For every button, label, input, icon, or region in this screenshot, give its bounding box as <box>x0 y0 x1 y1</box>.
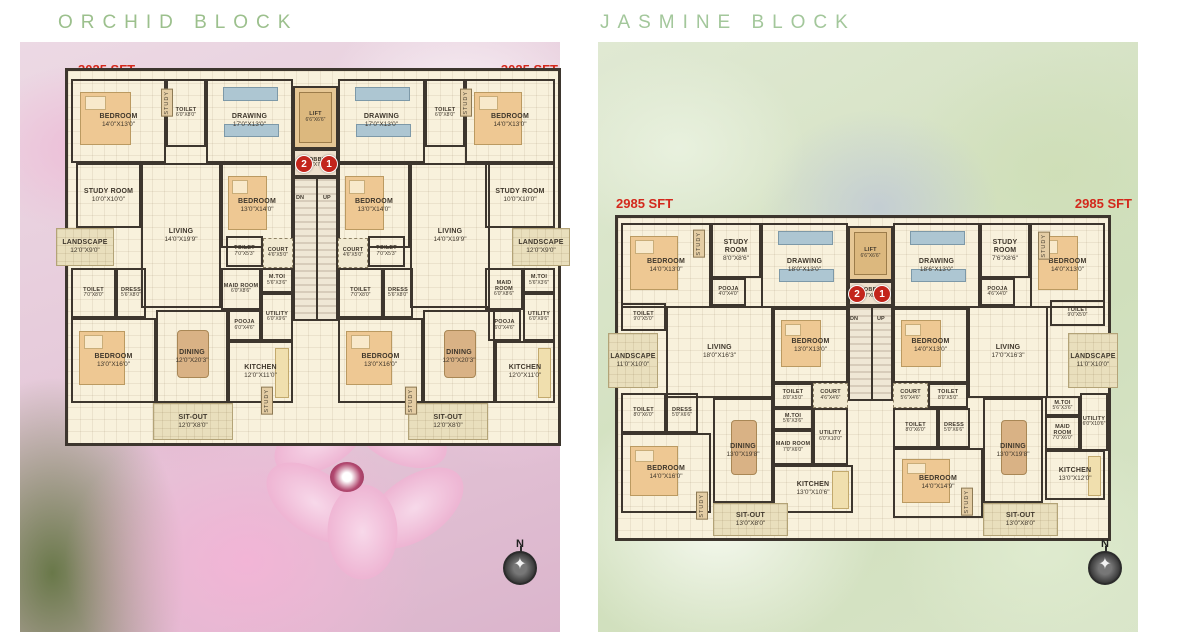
jasmine-sft-right: 2985 SFT <box>1062 196 1132 211</box>
room-bedroom: BEDROOM13'0"X13'0" <box>773 308 848 383</box>
study-nook-label: STUDY <box>161 89 173 117</box>
room-bedroom: BEDROOM13'0"X16'0" <box>71 318 156 403</box>
unit-number-badge: 2 <box>848 285 866 303</box>
room-utility: UTILITY6'0"X9'6" <box>261 293 293 341</box>
stair-direction-label: DN <box>296 195 304 201</box>
room-utility: UTILITY6'0"X10'0" <box>813 408 848 465</box>
room-toilet: TOILET9'0"X5'0" <box>621 303 666 331</box>
stair-direction-label: UP <box>323 195 331 201</box>
room-dining: DINING13'0"X19'8" <box>713 398 773 503</box>
room-bedroom: BEDROOM14'0"X13'0" <box>465 79 555 163</box>
stair-direction-label: DN <box>850 316 858 322</box>
room-drawing: DRAWING18'0"X13'0" <box>761 223 848 308</box>
room-drawing: DRAWING17'0"X13'0" <box>338 79 425 163</box>
room-lift: LIFT6'6"X6'6" <box>293 86 338 149</box>
room-maid-room: MAID ROOM6'0"X8'6" <box>221 268 261 310</box>
orchid-block-title: ORCHID BLOCK <box>58 12 298 34</box>
room-toilet: TOILET8'0"X5'0" <box>928 383 968 408</box>
room-study-room: STUDY ROOM8'0"X8'6" <box>711 223 761 278</box>
room-study-room: STUDY ROOM10'0"X10'0" <box>76 163 141 228</box>
room-court: COURT4'6"X4'6" <box>813 383 848 408</box>
room-pooja: POOJA4'6"X4'0" <box>980 278 1015 306</box>
room-bedroom: BEDROOM14'0"X13'0" <box>893 308 968 383</box>
room-living: LIVING14'0"X19'9" <box>141 163 221 308</box>
study-nook-label: STUDY <box>693 230 705 258</box>
room-sit-out: SIT-OUT13'0"X8'0" <box>983 503 1058 536</box>
room-pooja: POOJA6'0"X4'6" <box>228 310 261 341</box>
jasmine-sft-left: 2985 SFT <box>616 196 686 211</box>
room-drawing: DRAWING18'6"X13'0" <box>893 223 980 308</box>
room-drawing: DRAWING17'0"X13'0" <box>206 79 293 163</box>
sofa-furniture-icon <box>355 87 410 100</box>
room-maid-room: MAID ROOM6'0"X8'6" <box>485 268 523 310</box>
unit-number-badge: 1 <box>873 285 891 303</box>
room-living: LIVING14'0"X19'9" <box>410 163 490 308</box>
room-study-room: STUDY ROOM10'0"X10'0" <box>485 163 555 228</box>
room-m-toi: M.TOI5'6"X3'6" <box>261 268 293 293</box>
room-landscape: LANDSCAPE11'0"X10'0" <box>608 333 658 388</box>
room-m-toi: M.TOI5'6"X3'6" <box>1045 396 1080 416</box>
room-living: LIVING18'0"X16'3" <box>666 306 773 398</box>
jasmine-block-title: JASMINE BLOCK <box>600 12 856 34</box>
orchid-compass: N <box>498 538 542 590</box>
room-utility: UTILITY6'0"X9'6" <box>523 293 555 341</box>
study-nook-label: STUDY <box>460 89 472 117</box>
room-m-toi: M.TOI5'6"X3'6" <box>773 408 813 430</box>
room-dining: DINING13'0"X19'8" <box>983 398 1043 503</box>
room-court: COURT5'6"X4'6" <box>893 383 928 408</box>
room-landscape: LANDSCAPE12'0"X9'0" <box>512 228 570 266</box>
compass-rose-icon <box>503 551 537 585</box>
room-dress: DRESS5'0"X6'6" <box>938 408 970 448</box>
room-dress: DRESS5'0"X6'6" <box>666 393 698 433</box>
sofa-furniture-icon <box>778 231 833 244</box>
room-court: COURT4'6"X5'0" <box>338 238 368 268</box>
jasmine-floor-plan: BEDROOM14'0"X13'0"STUDY ROOM8'0"X8'6"POO… <box>615 215 1111 541</box>
room-toilet: TOILET6'0"X8'0" <box>425 79 465 147</box>
room-dining: DINING12'0"X20'3" <box>423 310 495 403</box>
unit-number-badge: 1 <box>320 155 338 173</box>
room-dining: DINING12'0"X20'3" <box>156 310 228 403</box>
floorplan-sheet: ORCHID BLOCK JASMINE BLOCK 3025 SFT 3025… <box>0 0 1200 632</box>
room-pooja: POOJA4'0"X4'0" <box>711 278 746 306</box>
kitchen-furniture-icon <box>275 348 289 399</box>
room-toilet: TOILET7'0"X5'3" <box>368 236 405 267</box>
room-toilet: TOILET8'0"X6'0" <box>893 408 938 448</box>
room-living: LIVING17'0"X16'3" <box>968 306 1048 398</box>
room-sit-out: SIT-OUT12'0"X8'0" <box>153 403 233 440</box>
room-pooja: POOJA6'0"X4'6" <box>488 310 521 341</box>
room-toilet: TOILET8'0"X5'0" <box>773 383 813 408</box>
room-toilet: TOILET7'0"X8'0" <box>71 268 116 318</box>
stair-direction-label: UP <box>877 316 885 322</box>
study-nook-label: STUDY <box>961 488 973 516</box>
room-toilet: TOILET7'0"X8'0" <box>338 268 383 318</box>
sofa-furniture-icon <box>223 87 278 100</box>
room-court: COURT4'6"X5'0" <box>263 238 293 268</box>
room-kitchen: KITCHEN13'0"X12'0" <box>1045 450 1105 500</box>
compass-rose-icon <box>1088 551 1122 585</box>
room-m-toi: M.TOI5'6"X3'6" <box>523 268 555 293</box>
room-landscape: LANDSCAPE11'0"X10'0" <box>1068 333 1118 388</box>
room-utility: UTILITY6'0"X10'6" <box>1080 393 1108 451</box>
room-landscape: LANDSCAPE12'0"X9'0" <box>56 228 114 266</box>
orchid-floor-plan: BEDROOM14'0"X13'0"TOILET6'0"X8'0"DRAWING… <box>65 68 561 446</box>
room-maid-room: MAID ROOM7'0"X6'0" <box>773 430 813 465</box>
room-toilet: TOILET7'0"X5'3" <box>226 236 263 267</box>
study-nook-label: STUDY <box>696 492 708 520</box>
study-nook-label: STUDY <box>1038 232 1050 260</box>
study-nook-label: STUDY <box>261 387 273 415</box>
room-dress: DRESS5'6"X8'0" <box>383 268 413 318</box>
unit-number-badge: 2 <box>295 155 313 173</box>
jasmine-compass: N <box>1083 538 1127 590</box>
sofa-furniture-icon <box>910 231 965 244</box>
room-lift: LIFT6'6"X6'6" <box>848 226 893 281</box>
room-kitchen: KITCHEN12'0"X11'0" <box>495 341 555 403</box>
room-dress: DRESS5'6"X8'0" <box>116 268 146 318</box>
room-toilet: TOILET8'0"X6'0" <box>621 393 666 433</box>
room-bedroom: BEDROOM14'0"X13'0" <box>71 79 166 163</box>
room-sit-out: SIT-OUT13'0"X8'0" <box>713 503 788 536</box>
room-toilet: TOILET9'0"X5'0" <box>1050 300 1105 326</box>
room-sit-out: SIT-OUT12'0"X8'0" <box>408 403 488 440</box>
room-maid-room: MAID ROOM7'0"X6'0" <box>1045 416 1080 450</box>
study-nook-label: STUDY <box>405 387 417 415</box>
room-study-room: STUDY ROOM7'6"X8'6" <box>980 223 1030 278</box>
kitchen-furniture-icon <box>832 471 849 510</box>
